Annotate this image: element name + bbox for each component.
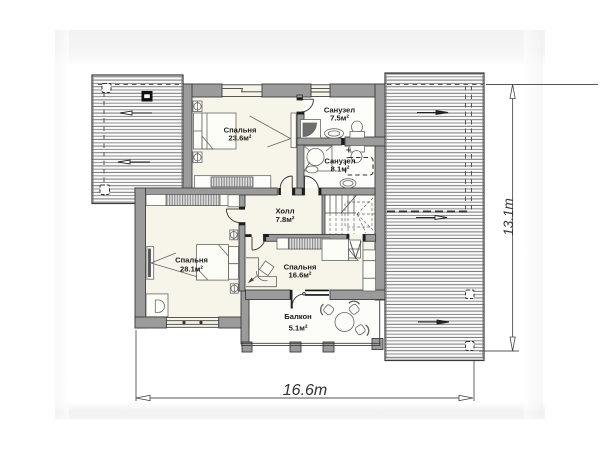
svg-text:16.6м²: 16.6м² [289, 271, 312, 280]
svg-text:5.1м²: 5.1м² [289, 324, 308, 333]
svg-text:7.8м²: 7.8м² [276, 215, 295, 224]
svg-text:23.6м²: 23.6м² [229, 134, 252, 143]
svg-text:16.6m: 16.6m [283, 382, 327, 399]
svg-text:Спальня: Спальня [175, 256, 208, 265]
svg-text:13.1m: 13.1m [501, 198, 516, 236]
svg-text:7.5м²: 7.5м² [330, 114, 349, 123]
svg-text:8.1м²: 8.1м² [331, 165, 350, 174]
svg-text:Балкон: Балкон [284, 312, 312, 321]
svg-text:28.1м²: 28.1м² [180, 265, 203, 274]
